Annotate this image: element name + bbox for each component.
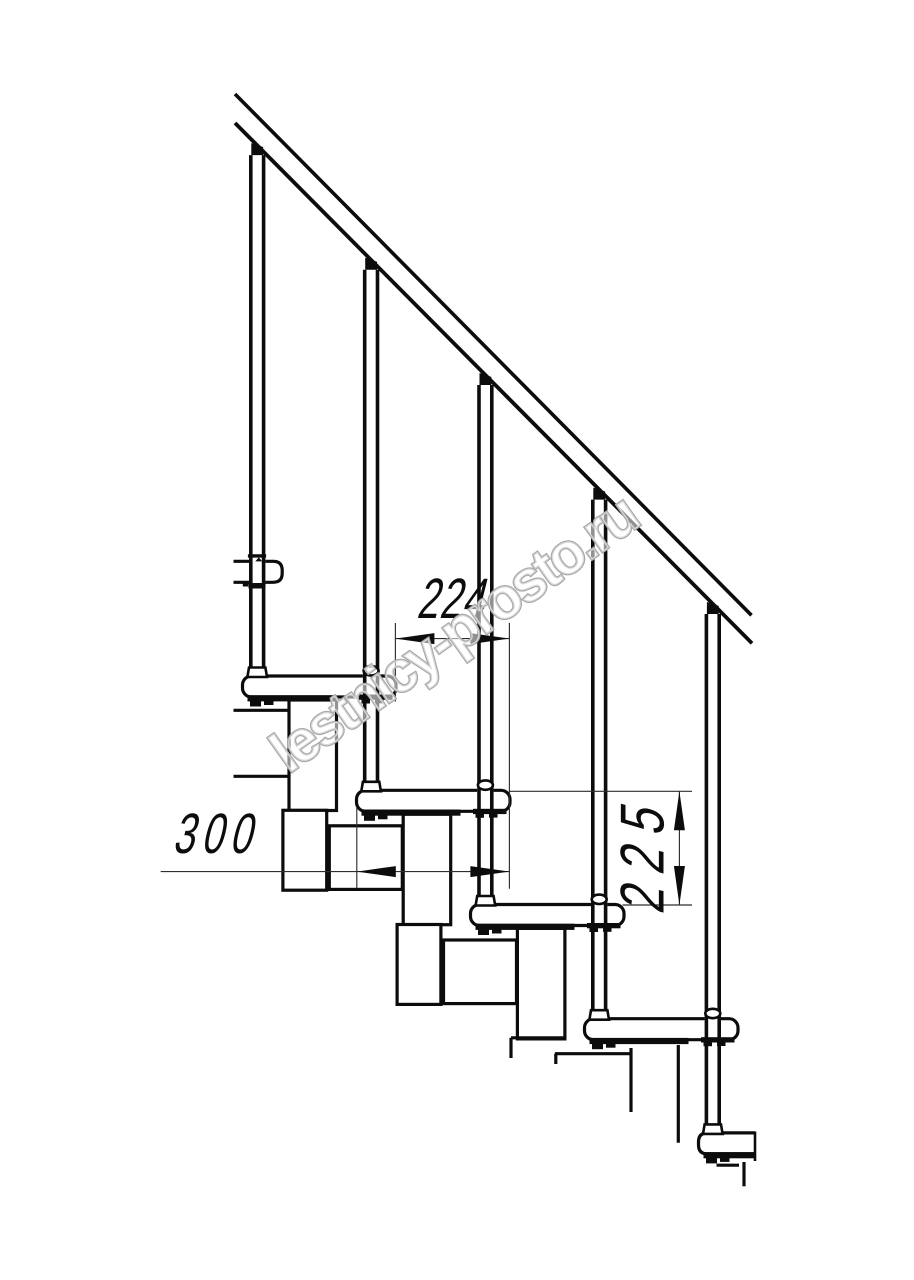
svg-text:300: 300	[169, 801, 270, 865]
svg-text:225: 225	[607, 784, 677, 919]
